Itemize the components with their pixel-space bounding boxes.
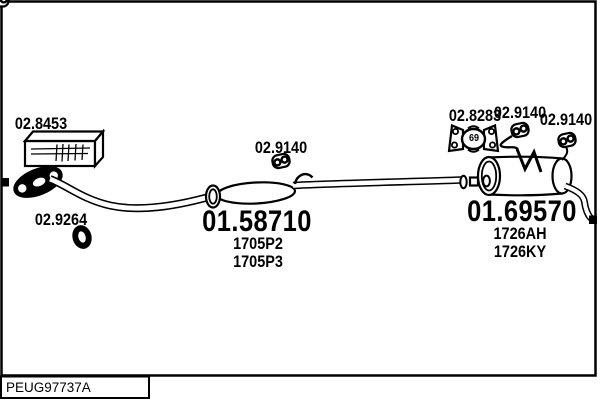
part-number-centre-silencer[interactable]: 01.58710 (202, 207, 312, 237)
part-number-mount-kit[interactable]: 02.8453 (15, 115, 67, 132)
centre-silencer-drawing (206, 180, 295, 207)
front-pipe (50, 179, 207, 208)
part-number-front-gasket[interactable]: 02.9264 (35, 211, 87, 228)
oe-ref-centre-silencer-2: 1705P3 (233, 253, 283, 270)
part-number-rear-hanger-2[interactable]: 02.9140 (540, 111, 592, 128)
part-number-rear-silencer[interactable]: 01.69570 (467, 197, 577, 227)
mount-kit-box-icon (25, 132, 103, 167)
drawing-code: PEUG97737A (6, 380, 91, 395)
part-number-mid-hanger[interactable]: 02.9140 (255, 139, 307, 156)
tail-pipe-end-mark (589, 216, 597, 225)
exhaust-parts-diagram: 02.8453 02.9264 02.9140 02.8283 69 02.91… (0, 0, 600, 400)
rear-hanger-2-icon (557, 132, 576, 148)
hanger-rod-short (562, 147, 567, 160)
part-number-rear-hanger-1[interactable]: 02.9140 (494, 104, 546, 121)
rear-hanger-1-icon (510, 122, 529, 138)
oe-ref-rear-silencer-1: 1726AH (493, 225, 546, 242)
pipe-end-collar (460, 176, 466, 188)
bracket-marking: 69 (468, 134, 478, 144)
oe-ref-rear-silencer-2: 1726KY (494, 243, 546, 260)
manifold-connection-mark (2, 178, 9, 187)
rear-silencer-drawing (478, 157, 572, 196)
oe-ref-centre-silencer-1: 1705P2 (233, 235, 283, 252)
intermediate-pipe (293, 180, 461, 186)
pipe-joint-mark (470, 178, 478, 186)
